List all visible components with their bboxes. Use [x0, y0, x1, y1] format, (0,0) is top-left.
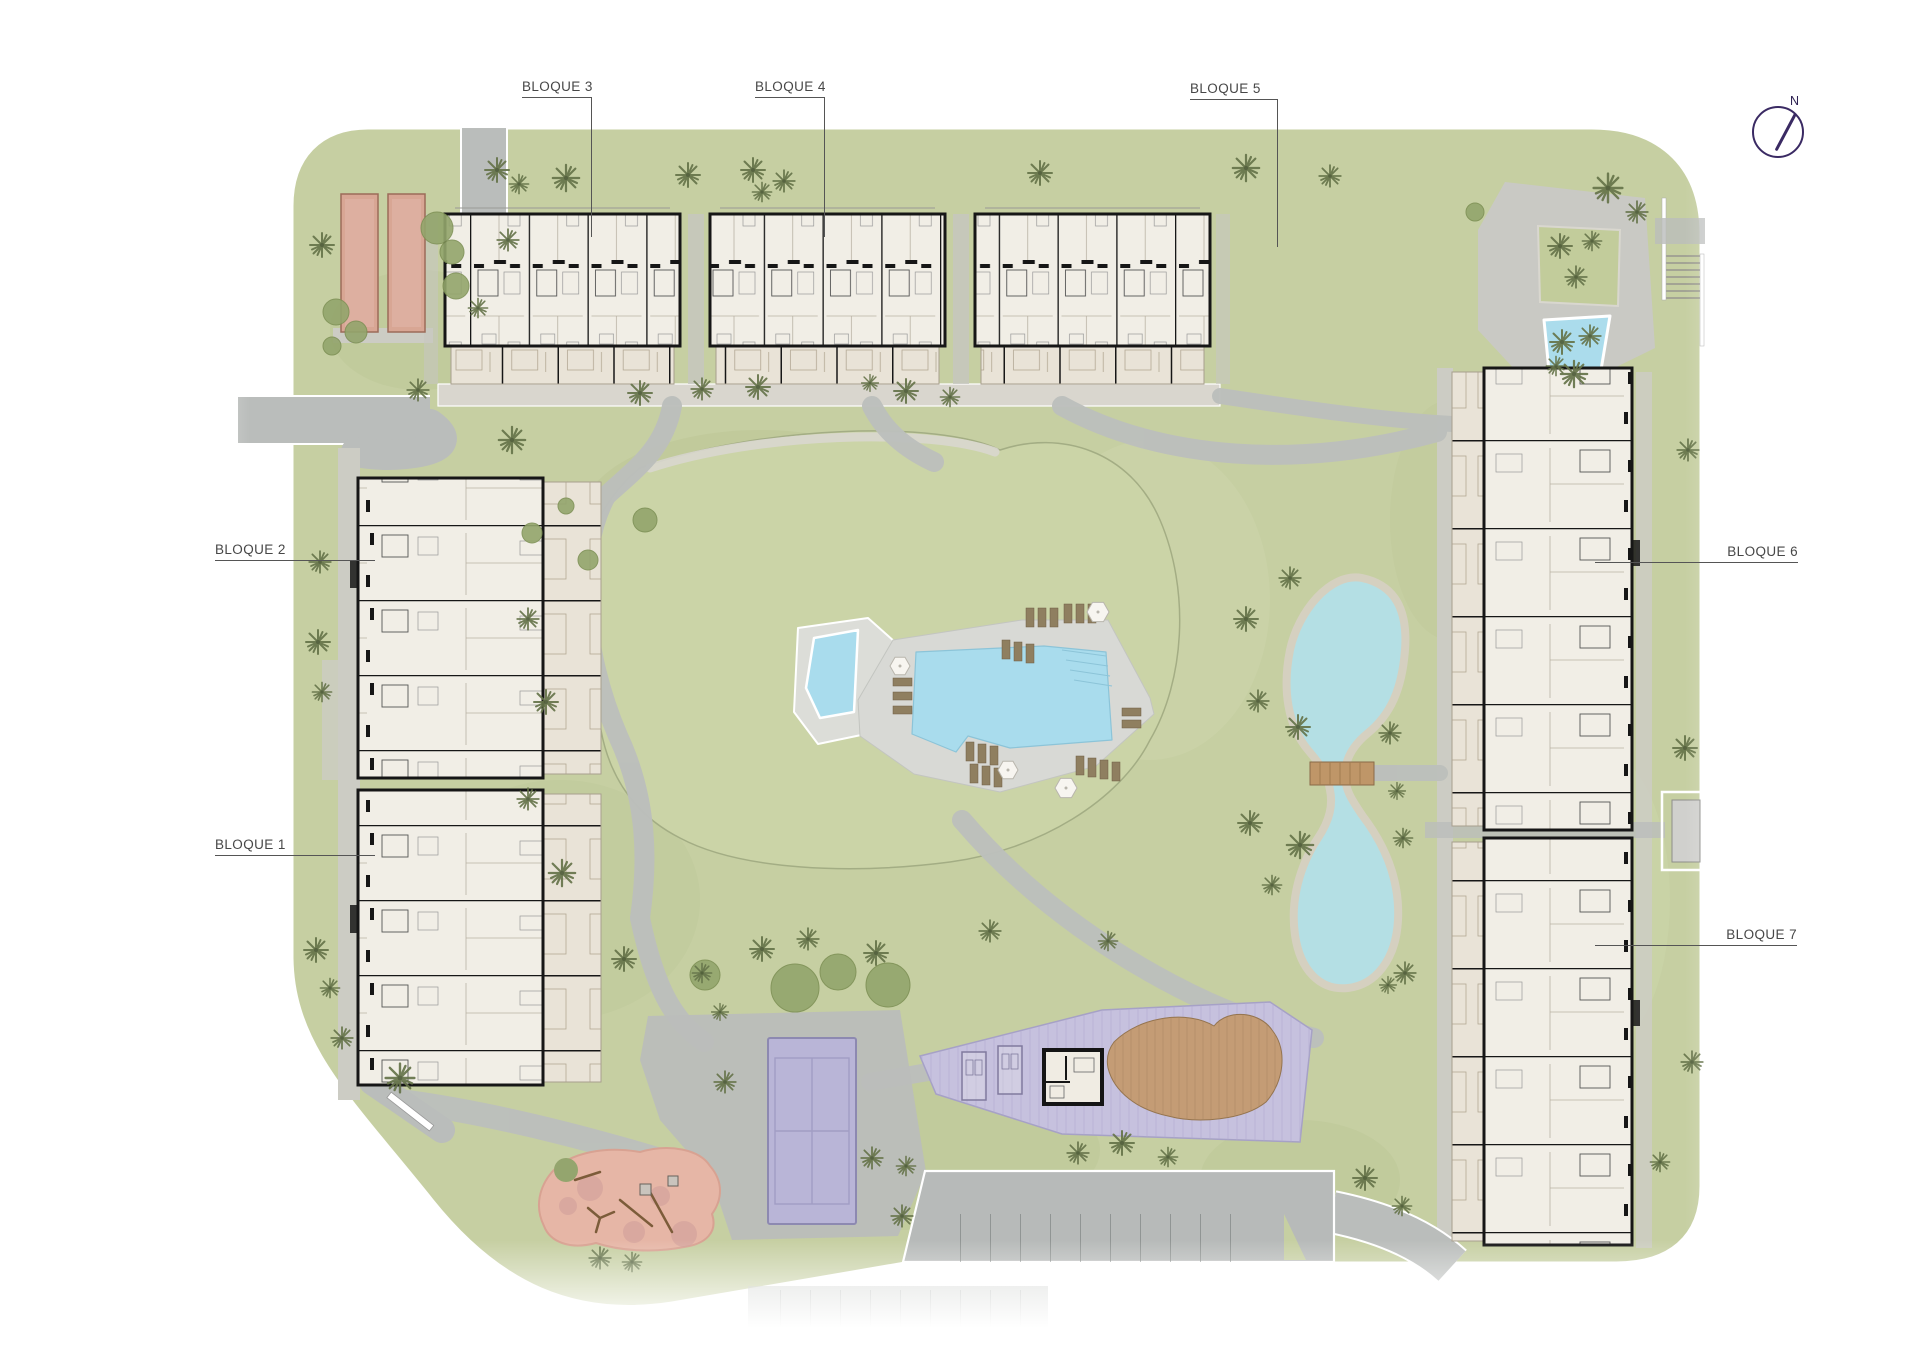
- block-label-bloque-3: BLOQUE 3: [522, 79, 592, 98]
- north-compass: N: [1752, 106, 1804, 158]
- block-label-bloque-6: BLOQUE 6: [1595, 544, 1798, 563]
- block-label-bloque-4: BLOQUE 4: [755, 79, 825, 98]
- site-plan-canvas: BLOQUE 3 BLOQUE 4 BLOQUE 5 BLOQUE 2 BLOQ…: [0, 0, 1920, 1365]
- leader-line-bloque-4: [824, 97, 825, 237]
- block-label-bloque-5: BLOQUE 5: [1190, 81, 1278, 100]
- leader-line-bloque-5: [1277, 99, 1278, 247]
- compass-north-label: N: [1790, 94, 1799, 108]
- annotation-layer: BLOQUE 3 BLOQUE 4 BLOQUE 5 BLOQUE 2 BLOQ…: [0, 0, 1920, 1365]
- block-label-bloque-7: BLOQUE 7: [1595, 927, 1797, 946]
- leader-line-bloque-3: [591, 97, 592, 237]
- block-label-bloque-2: BLOQUE 2: [215, 542, 375, 561]
- block-label-bloque-1: BLOQUE 1: [215, 837, 375, 856]
